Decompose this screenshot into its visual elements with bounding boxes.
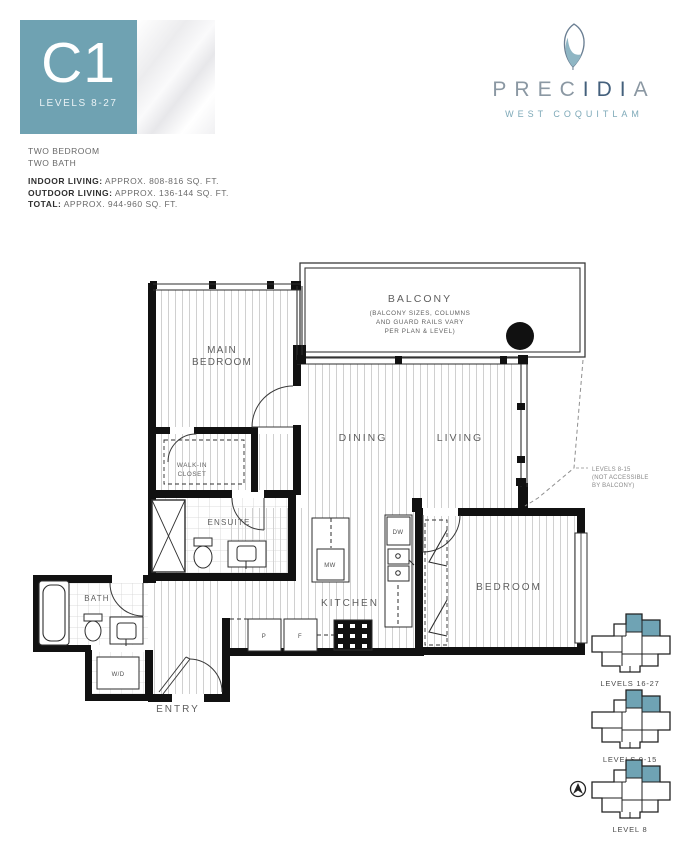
label-balcony: BALCONY <box>388 293 452 305</box>
plan-code: C1 <box>41 35 116 92</box>
kitchen-sink-icon <box>388 549 409 564</box>
label-main-bedroom-2: BEDROOM <box>192 357 252 368</box>
keyplan-label-3: LEVEL 8 <box>613 825 648 834</box>
keyplan-label-1: LEVELS 16-27 <box>600 679 659 688</box>
label-balcony-note1: (BALCONY SIZES, COLUMNS <box>370 310 471 317</box>
label-main-bedroom-1: MAIN <box>207 345 237 356</box>
label-bedroom: BEDROOM <box>476 582 542 593</box>
summary-bedrooms: TWO BEDROOM <box>28 146 229 158</box>
summary-baths: TWO BATH <box>28 158 229 170</box>
label-ensuite: ENSUITE <box>207 518 250 527</box>
label-fridge: F <box>298 634 302 640</box>
marble-texture <box>137 20 215 134</box>
note-line1: LEVELS 8-15 <box>592 467 631 473</box>
tub-icon <box>39 581 69 645</box>
label-balcony-note3: PER PLAN & LEVEL) <box>385 328 456 335</box>
column-icon <box>506 322 534 350</box>
label-walkin-1: WALK-IN <box>177 462 207 469</box>
ensuite-sink-icon <box>228 541 266 569</box>
summary-indoor: INDOOR LIVING: APPROX. 808-816 SQ. FT. <box>28 176 229 188</box>
key-plans: LEVELS 16-27 LEVELS 9-15 LEVEL 8 <box>571 614 671 834</box>
brand-name-dark: IDI <box>583 78 634 101</box>
label-dining: DINING <box>339 432 388 444</box>
unit-summary: TWO BEDROOM TWO BATH INDOOR LIVING: APPR… <box>28 146 229 211</box>
label-kitchen: KITCHEN <box>321 598 379 609</box>
brand-name-light2: A <box>634 78 656 101</box>
total-value: APPROX. 944-960 SQ. FT. <box>61 199 177 209</box>
label-mw: MW <box>324 563 335 569</box>
label-pantry: P <box>262 634 266 640</box>
label-entry: ENTRY <box>156 704 200 715</box>
summary-outdoor: OUTDOOR LIVING: APPROX. 136-144 SQ. FT. <box>28 188 229 200</box>
plan-levels: LEVELS 8-27 <box>39 98 117 109</box>
label-balcony-note2: AND GUARD RAILS VARY <box>376 319 464 326</box>
total-label: TOTAL: <box>28 199 61 209</box>
shower-icon <box>152 500 185 572</box>
indoor-value: APPROX. 808-816 SQ. FT. <box>103 176 219 186</box>
brand-logo: PRECIDIA WEST COQUITLAM <box>468 22 680 119</box>
bath-sink-icon <box>110 617 143 646</box>
ensuite-toilet-icon <box>194 538 212 568</box>
bedroom-window <box>575 533 587 643</box>
keyplan-level-8: LEVEL 8 <box>592 760 670 834</box>
brand-location: WEST COQUITLAM <box>505 109 643 119</box>
keyplan-levels-9-15: LEVELS 9-15 <box>592 690 670 764</box>
brand-name-light: PREC <box>492 78 582 101</box>
plan-badge: C1 LEVELS 8-27 <box>20 20 137 134</box>
kitchen-island <box>312 518 349 582</box>
brand-name: PRECIDIA <box>492 78 655 102</box>
summary-total: TOTAL: APPROX. 944-960 SQ. FT. <box>28 199 229 211</box>
indoor-label: INDOOR LIVING: <box>28 176 103 186</box>
north-arrow-icon <box>571 782 586 797</box>
note-line2: (NOT ACCESSIBLE <box>592 475 649 481</box>
outdoor-value: APPROX. 136-144 SQ. FT. <box>112 188 228 198</box>
outdoor-label: OUTDOOR LIVING: <box>28 188 112 198</box>
label-living: LIVING <box>437 432 483 444</box>
note-line3: BY BALCONY) <box>592 483 634 489</box>
leaf-icon <box>557 22 591 70</box>
balcony-access-note: LEVELS 8-15 (NOT ACCESSIBLE BY BALCONY) <box>525 360 649 506</box>
label-walkin-2: CLOSET <box>178 471 207 478</box>
label-wd: W/D <box>112 672 125 678</box>
label-bath: BATH <box>84 594 110 603</box>
keyplan-levels-16-27: LEVELS 16-27 <box>592 614 670 688</box>
label-dw: DW <box>393 530 404 536</box>
bath-toilet-icon <box>84 614 102 641</box>
